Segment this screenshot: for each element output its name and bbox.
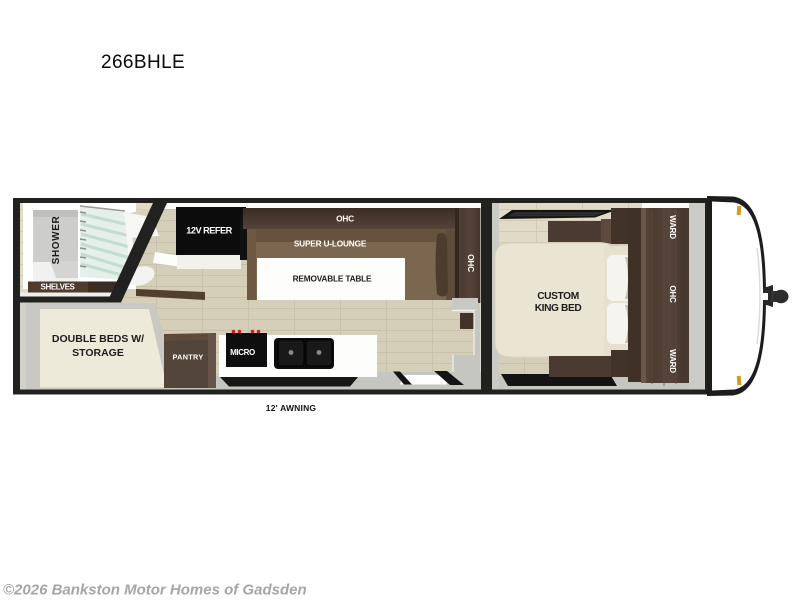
svg-text:OHC: OHC — [466, 254, 476, 272]
svg-text:SHELVES: SHELVES — [41, 283, 76, 292]
svg-text:CUSTOM: CUSTOM — [537, 291, 579, 302]
svg-text:DOUBLE BEDS W/: DOUBLE BEDS W/ — [52, 333, 144, 345]
svg-text:©2026 Bankston Motor Homes of: ©2026 Bankston Motor Homes of Gadsden — [3, 582, 307, 599]
svg-text:12V REFER: 12V REFER — [186, 226, 232, 236]
svg-text:PANTRY: PANTRY — [173, 353, 204, 362]
svg-text:REMOVABLE TABLE: REMOVABLE TABLE — [293, 274, 372, 284]
svg-text:KING BED: KING BED — [535, 303, 582, 314]
svg-text:STORAGE: STORAGE — [72, 347, 124, 359]
svg-text:OHC: OHC — [668, 285, 677, 303]
svg-text:SUPER U-LOUNGE: SUPER U-LOUNGE — [294, 239, 367, 249]
svg-text:SHOWER: SHOWER — [51, 216, 62, 265]
svg-text:266BHLE: 266BHLE — [101, 52, 185, 73]
svg-text:WARD: WARD — [668, 215, 677, 239]
svg-text:OHC: OHC — [336, 214, 354, 224]
svg-text:WARD: WARD — [668, 349, 677, 373]
svg-text:MICRO: MICRO — [230, 348, 255, 357]
svg-text:12' AWNING: 12' AWNING — [266, 403, 317, 413]
